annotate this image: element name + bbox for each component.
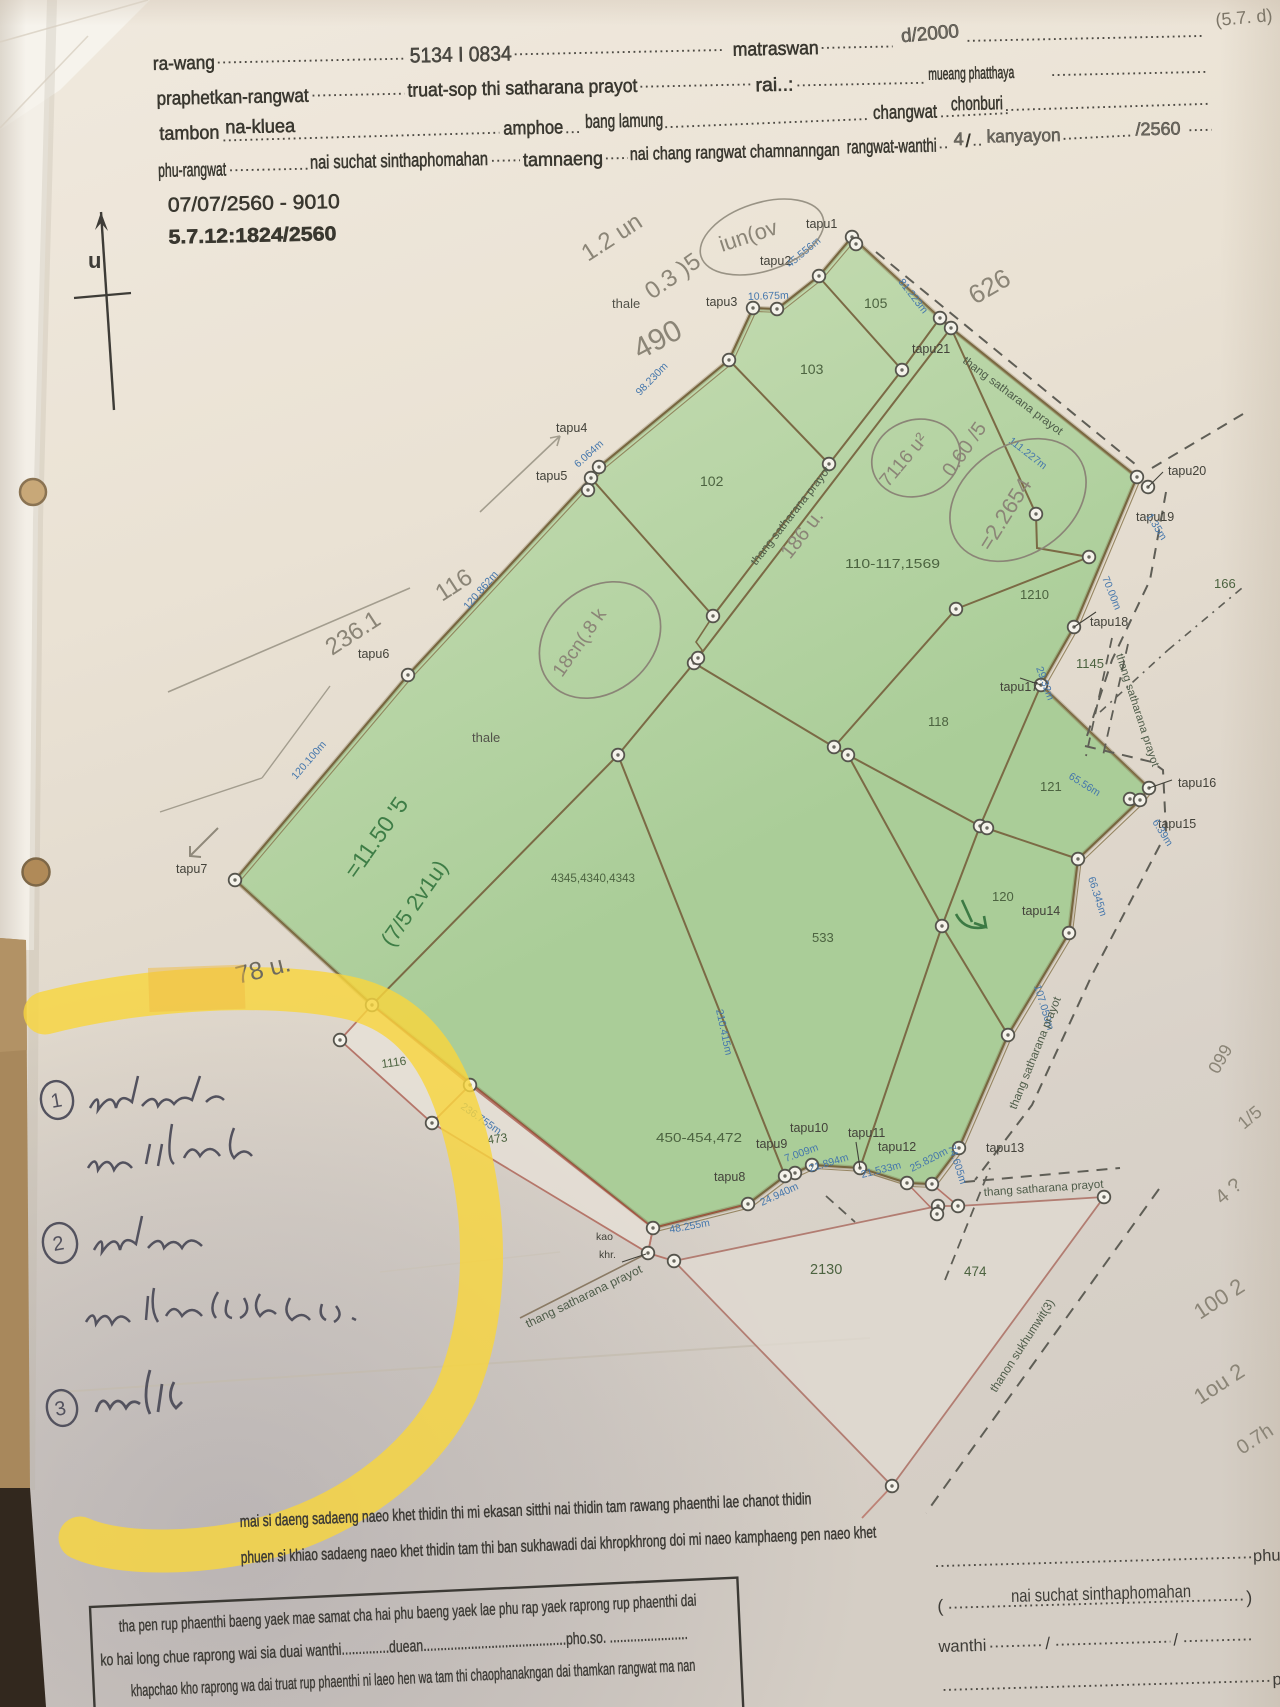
svg-text:120: 120 [992, 889, 1014, 904]
svg-text:phu-rangwat: phu-rangwat [158, 159, 227, 181]
svg-text:praphetkan-rangwat: praphetkan-rangwat [156, 86, 309, 110]
svg-text:tapu14: tapu14 [1022, 904, 1060, 918]
svg-text:450-454,472: 450-454,472 [656, 1130, 742, 1145]
svg-text:/: / [965, 131, 970, 151]
svg-text:/: / [1045, 1634, 1051, 1653]
svg-text:nai suchat sinthaphomahan: nai suchat sinthaphomahan [310, 149, 488, 174]
svg-text:rangwat-wanthi: rangwat-wanthi [847, 136, 937, 159]
svg-text:tapu3: tapu3 [706, 295, 737, 309]
svg-text:phut: phut [1272, 1670, 1280, 1689]
svg-text:tapu21: tapu21 [912, 342, 950, 356]
svg-text:tapu4: tapu4 [556, 421, 587, 435]
svg-text:matraswan: matraswan [732, 38, 818, 61]
svg-text:tapu8: tapu8 [714, 1170, 745, 1184]
svg-text:phuja: phuja [1253, 1546, 1280, 1565]
svg-text:tapu18: tapu18 [1090, 615, 1128, 629]
svg-text:rai..:: rai..: [755, 75, 793, 97]
svg-text:/: / [1173, 1630, 1179, 1649]
svg-text:tapu5: tapu5 [536, 469, 567, 483]
svg-text:121: 121 [1040, 779, 1062, 794]
svg-text:166: 166 [1214, 576, 1236, 591]
svg-text:tambon: tambon [159, 123, 219, 145]
svg-text:tapu20: tapu20 [1168, 464, 1206, 478]
svg-text:103: 103 [800, 361, 824, 377]
svg-text:tapu11: tapu11 [848, 1126, 885, 1140]
svg-text:tapu9: tapu9 [756, 1137, 787, 1151]
svg-text:amphoe: amphoe [503, 117, 563, 139]
svg-text:2130: 2130 [810, 1262, 842, 1278]
svg-text:bang lamung: bang lamung [585, 110, 663, 133]
svg-text:1210: 1210 [1020, 587, 1049, 602]
svg-text:tapu16: tapu16 [1178, 776, 1216, 790]
svg-text:kao: kao [596, 1231, 613, 1243]
svg-text:5134 I 0834: 5134 I 0834 [410, 42, 513, 67]
svg-text:4345,4340,4343: 4345,4340,4343 [551, 871, 635, 885]
svg-text:1145: 1145 [1076, 656, 1104, 671]
svg-text:118: 118 [928, 714, 949, 729]
svg-text:07/07/2560 - 9010: 07/07/2560 - 9010 [168, 191, 340, 217]
svg-text:tapu13: tapu13 [986, 1141, 1024, 1155]
svg-text:(: ( [937, 1596, 944, 1616]
svg-text:tapu7: tapu7 [176, 862, 207, 876]
svg-text:khr.: khr. [599, 1249, 616, 1261]
svg-text:474: 474 [964, 1264, 987, 1279]
svg-text:mueang phatthaya: mueang phatthaya [928, 63, 1015, 84]
svg-text:tamnaeng: tamnaeng [523, 149, 603, 172]
svg-text:na-kluea: na-kluea [225, 116, 296, 138]
svg-text:tapu1: tapu1 [806, 217, 837, 231]
svg-text:tapu12: tapu12 [878, 1140, 916, 1154]
svg-text:533: 533 [812, 930, 834, 945]
svg-text:102: 102 [700, 473, 724, 489]
svg-text:4: 4 [953, 129, 963, 149]
svg-text:/2560: /2560 [1135, 118, 1180, 139]
svg-text:5.7.12:1824/2560: 5.7.12:1824/2560 [168, 223, 336, 249]
svg-text:10.675m: 10.675m [748, 290, 790, 303]
svg-text:thale: thale [612, 296, 640, 311]
svg-text:kanyayon: kanyayon [986, 125, 1060, 147]
svg-text:chonburi: chonburi [951, 93, 1003, 115]
svg-text:tapu10: tapu10 [790, 1121, 828, 1135]
svg-text:105: 105 [864, 295, 888, 311]
svg-text:wanthi: wanthi [937, 1636, 986, 1656]
svg-text:): ) [1246, 1587, 1253, 1607]
svg-text:changwat: changwat [873, 102, 938, 124]
svg-text:thale: thale [472, 730, 500, 745]
svg-text:ra-wang: ra-wang [153, 53, 215, 75]
svg-text:110-117,1569: 110-117,1569 [845, 556, 940, 571]
svg-text:u: u [88, 248, 101, 273]
svg-text:tapu6: tapu6 [358, 647, 389, 661]
